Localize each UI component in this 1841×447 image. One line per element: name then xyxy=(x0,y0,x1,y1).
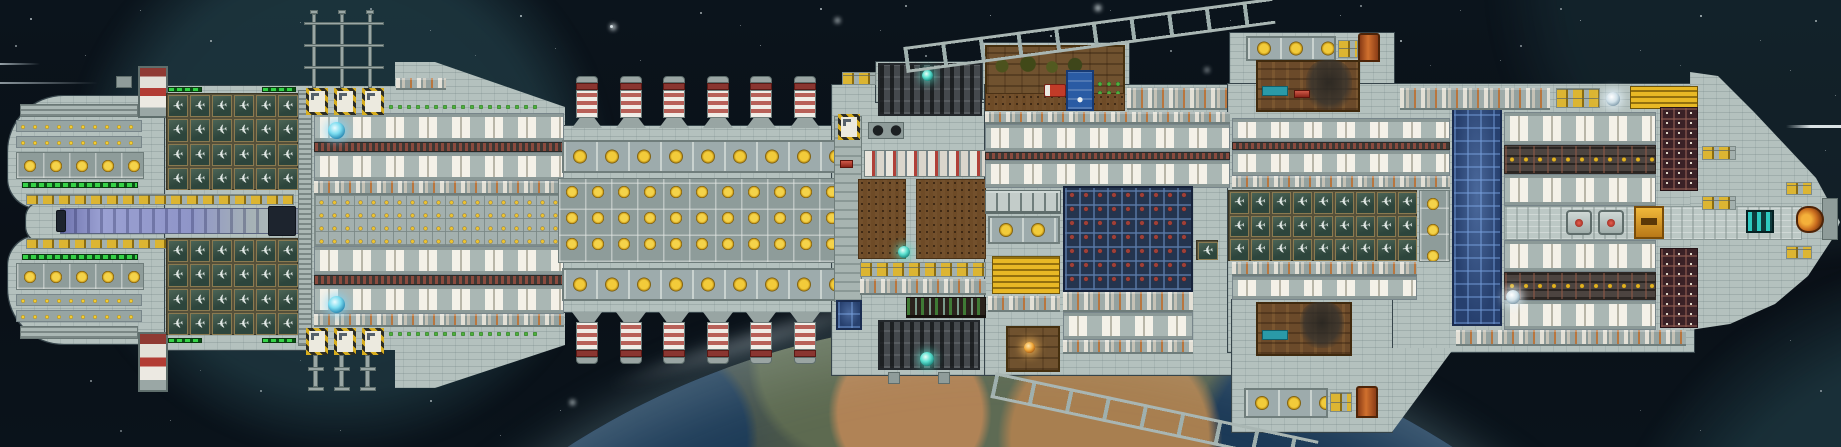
hall-crate-grid xyxy=(314,195,564,246)
hall-orb-top xyxy=(328,122,345,139)
drone-cell: ✈ xyxy=(256,313,276,335)
drone-jet-icon: ✈ xyxy=(1377,216,1396,238)
drone-jet-icon: ✈ xyxy=(190,240,210,262)
dock-leg-brace xyxy=(360,367,376,371)
cargo-drum-grid xyxy=(558,178,838,263)
pod-deck-machines-bottom xyxy=(562,268,836,301)
fuel-pod-base xyxy=(572,312,602,322)
keg-column-top xyxy=(1660,107,1698,191)
drone-jet-icon: ✈ xyxy=(212,144,232,166)
dock-leg-post xyxy=(365,355,370,387)
drone-jet-icon: ✈ xyxy=(1377,192,1396,214)
drone-bay-aft: ✈✈✈✈✈✈✈✈✈✈✈✈✈✈✈✈✈✈✈✈✈✈✈✈✈✈✈ xyxy=(1228,190,1417,261)
drone-cell: ✈ xyxy=(212,144,232,166)
drone-jet-icon: ✈ xyxy=(1314,216,1333,238)
bridge-drums-bottom xyxy=(1244,388,1328,418)
hydro-farm-mid-right xyxy=(916,179,986,259)
drone-cell: ✈ xyxy=(1398,216,1417,238)
drone-cell: ✈ xyxy=(190,264,210,286)
bow-ammo-row-3 xyxy=(16,294,142,306)
drone-jet-icon: ✈ xyxy=(190,168,210,190)
drone-cell: ✈ xyxy=(278,168,298,190)
fuel-pod-band xyxy=(750,83,772,90)
console-top xyxy=(1262,86,1288,96)
fuel-pod-body xyxy=(620,90,642,118)
machine-pod-2 xyxy=(1598,210,1624,235)
drone-jet-icon: ✈ xyxy=(1251,192,1270,214)
fuel-pod-cap xyxy=(663,76,685,83)
drone-jet-icon: ✈ xyxy=(1272,239,1291,261)
fuel-pod-cap xyxy=(576,357,598,364)
fuel-pod-cap xyxy=(663,357,685,364)
panel-red-top xyxy=(1294,90,1310,98)
galley-shelf-2 xyxy=(860,279,986,295)
dock-leg-brace xyxy=(308,367,324,371)
mast-post xyxy=(340,14,344,88)
fuel-pod-base xyxy=(659,118,689,128)
aft-low-shelf xyxy=(1456,330,1686,346)
drone-jet-icon: ✈ xyxy=(1230,239,1249,261)
drone-cell: ✈ xyxy=(278,313,298,335)
drone-jet-icon: ✈ xyxy=(1356,239,1375,261)
drone-jet-icon: ✈ xyxy=(278,95,298,117)
aft-cols-1 xyxy=(1232,118,1450,142)
drone-jet-icon: ✈ xyxy=(212,264,232,286)
robot-arm-icon xyxy=(339,333,342,340)
crew-lockers xyxy=(864,150,986,177)
drone-jet-icon: ✈ xyxy=(234,313,254,335)
robot-arm-icon xyxy=(843,119,846,126)
hall-cols-4 xyxy=(314,285,564,314)
spine-crates-top xyxy=(26,194,294,205)
dock-leg-post xyxy=(313,355,318,387)
stern-cap xyxy=(1822,198,1838,240)
drone-cell: ✈ xyxy=(168,264,188,286)
gold-machines xyxy=(988,216,1060,244)
mast-cap xyxy=(310,10,318,14)
fuel-pod-cap xyxy=(750,357,772,364)
berry-bushes xyxy=(1096,80,1124,94)
drone-cell: ✈ xyxy=(278,95,298,117)
drone-cell: ✈ xyxy=(234,264,254,286)
fuel-pod-body xyxy=(576,90,598,118)
drone-rack-lights-tl xyxy=(168,87,202,92)
drone-jet-icon: ✈ xyxy=(1314,192,1333,214)
drone-jet-icon: ✈ xyxy=(256,313,276,335)
drone-jet-icon: ✈ xyxy=(1356,192,1375,214)
fuel-pod-base xyxy=(616,118,646,128)
drone-cell: ✈ xyxy=(1198,242,1218,260)
drone-cell: ✈ xyxy=(256,168,276,190)
drone-jet-icon: ✈ xyxy=(190,264,210,286)
drone-jet-icon: ✈ xyxy=(1230,216,1249,238)
bow-vent-bottom xyxy=(20,326,138,339)
engine-lamp-top xyxy=(922,70,933,81)
pod-deck-machines-top xyxy=(562,140,836,173)
drone-cell: ✈ xyxy=(212,289,232,311)
fuel-pod-cap xyxy=(707,357,729,364)
hall-cols-3 xyxy=(314,246,564,275)
drone-cell: ✈ xyxy=(234,168,254,190)
drone-cell: ✈ xyxy=(234,95,254,117)
aftr-cols-1 xyxy=(1504,112,1656,145)
drone-jet-icon: ✈ xyxy=(168,119,188,141)
fuel-pod-base xyxy=(659,312,689,322)
drone-jet-icon: ✈ xyxy=(1230,192,1249,214)
drone-rack-lights-bl xyxy=(168,338,202,343)
drone-cell: ✈ xyxy=(190,119,210,141)
drone-jet-icon: ✈ xyxy=(256,119,276,141)
drone-jet-icon: ✈ xyxy=(190,313,210,335)
hall-orb-bottom xyxy=(328,296,345,313)
bow-drum-row-top xyxy=(16,152,144,179)
dock-leg-post xyxy=(339,355,344,387)
drone-jet-icon: ✈ xyxy=(190,95,210,117)
drone-cell: ✈ xyxy=(278,240,298,262)
dock-leg-foot xyxy=(334,387,350,391)
drone-jet-icon: ✈ xyxy=(278,119,298,141)
dock-leg-foot xyxy=(360,387,376,391)
aft-crates-1 xyxy=(1702,146,1736,160)
drone-jet-icon: ✈ xyxy=(1398,216,1417,238)
spine-warn-lamp xyxy=(840,160,853,168)
drone-cell: ✈ xyxy=(1314,216,1333,238)
fuel-pod-base xyxy=(790,312,820,322)
fuel-pod-band xyxy=(576,83,598,90)
drone-jet-icon: ✈ xyxy=(168,144,188,166)
drone-cell: ✈ xyxy=(256,289,276,311)
drone-cell: ✈ xyxy=(168,289,188,311)
robot-arm-icon xyxy=(311,333,314,340)
fuel-pod-body xyxy=(620,322,642,350)
star-cols-3 xyxy=(1063,312,1193,340)
engine-lamp-bottom xyxy=(920,352,934,366)
drone-jet-icon: ✈ xyxy=(278,168,298,190)
drone-cell: ✈ xyxy=(234,240,254,262)
drone-cell: ✈ xyxy=(1356,192,1375,214)
aft-cols-2 xyxy=(1232,150,1450,176)
robot-arm-icon xyxy=(367,93,370,100)
fuel-pod-body xyxy=(576,322,598,350)
deck-shelf-top xyxy=(1127,88,1227,110)
drone-cell: ✈ xyxy=(256,95,276,117)
hall-plants-top xyxy=(378,103,542,113)
drone-jet-icon: ✈ xyxy=(212,289,232,311)
drone-jet-icon: ✈ xyxy=(234,144,254,166)
fuel-pod-cap xyxy=(707,76,729,83)
keg-column-bottom xyxy=(1660,248,1698,328)
aftr-cols-2 xyxy=(1504,174,1656,206)
hull-stub-2 xyxy=(938,372,950,384)
game-viewport[interactable]: ✈✈✈✈✈✈✈✈✈✈✈✈✈✈✈✈✈✈✈✈✈✈✈✈✈✈✈✈✈✈✈✈✈✈✈✈✈✈✈✈… xyxy=(0,0,1841,447)
drone-jet-icon: ✈ xyxy=(1356,216,1375,238)
machine-pod-1 xyxy=(1566,210,1592,235)
fuel-pod-band xyxy=(620,350,642,357)
drone-jet-icon: ✈ xyxy=(212,240,232,262)
farm-sprinkler xyxy=(898,246,910,258)
drone-jet-icon: ✈ xyxy=(234,240,254,262)
drone-cell: ✈ xyxy=(256,144,276,166)
drone-cell: ✈ xyxy=(1293,239,1312,261)
drone-cell: ✈ xyxy=(168,95,188,117)
washroom xyxy=(1066,70,1094,111)
workbench-row-bottom xyxy=(306,328,384,355)
drone-jet-icon: ✈ xyxy=(278,240,298,262)
drone-cell: ✈ xyxy=(1251,192,1270,214)
fuel-pod-base xyxy=(616,312,646,322)
bow-green-top xyxy=(22,182,138,188)
drone-cell: ✈ xyxy=(1356,239,1375,261)
drone-jet-icon: ✈ xyxy=(190,119,210,141)
bow-ammo-row-1 xyxy=(16,120,142,132)
dock-leg-brace xyxy=(334,367,350,371)
drone-jet-icon: ✈ xyxy=(190,144,210,166)
drone-jet-icon: ✈ xyxy=(212,313,232,335)
drone-jet-icon: ✈ xyxy=(1335,216,1354,238)
fuel-pod-body xyxy=(794,322,816,350)
hold-room xyxy=(268,206,296,236)
drone-jet-icon: ✈ xyxy=(278,144,298,166)
drone-cell: ✈ xyxy=(1398,192,1417,214)
roof-crates-1 xyxy=(1556,88,1600,108)
workshop-masts xyxy=(304,10,384,88)
aft-roof-shelf xyxy=(1400,88,1550,110)
fuel-pods-top xyxy=(576,76,816,128)
fuel-pod-base xyxy=(746,312,776,322)
furnace-smoke-top xyxy=(1306,60,1352,110)
drone-cell: ✈ xyxy=(168,119,188,141)
drone-cell: ✈ xyxy=(1314,239,1333,261)
lift-tower-top xyxy=(138,66,168,118)
fuel-pod-band xyxy=(620,83,642,90)
fuel-pod-body xyxy=(663,90,685,118)
fuel-pod-base xyxy=(703,312,733,322)
drone-cell: ✈ xyxy=(212,119,232,141)
drone-jet-icon: ✈ xyxy=(256,168,276,190)
drone-cell: ✈ xyxy=(212,240,232,262)
drone-cell: ✈ xyxy=(1335,239,1354,261)
drone-cell: ✈ xyxy=(1293,216,1312,238)
aft-crates-4 xyxy=(1786,246,1812,259)
hall-plants-bottom xyxy=(378,330,542,340)
drone-cell: ✈ xyxy=(234,289,254,311)
roof-lamp xyxy=(1606,92,1620,106)
mast-crossbar xyxy=(304,66,384,69)
hull-stub-1 xyxy=(888,372,900,384)
fuel-pod-base xyxy=(790,118,820,128)
roof-crates-2 xyxy=(1630,86,1698,109)
hall-shelf-low xyxy=(314,314,564,327)
fuel-pod-band xyxy=(707,83,729,90)
drone-jet-icon: ✈ xyxy=(256,264,276,286)
assembler xyxy=(1634,206,1664,239)
drone-cell: ✈ xyxy=(1356,216,1375,238)
bow-drum-row-bottom xyxy=(16,263,144,290)
drone-cell: ✈ xyxy=(190,240,210,262)
fuel-pod-band xyxy=(750,350,772,357)
fuel-pod-cap xyxy=(794,76,816,83)
aftr-cols-4 xyxy=(1504,300,1656,330)
drone-cell: ✈ xyxy=(256,240,276,262)
drone-jet-icon: ✈ xyxy=(278,264,298,286)
drone-cell: ✈ xyxy=(1314,192,1333,214)
spine-bench xyxy=(838,114,862,140)
drone-jet-icon: ✈ xyxy=(1377,239,1396,261)
mast-cap xyxy=(338,10,346,14)
bow-ammo-row-2 xyxy=(16,136,142,148)
drone-cell: ✈ xyxy=(234,119,254,141)
drone-cell: ✈ xyxy=(278,289,298,311)
hall-roof-shelf xyxy=(396,78,446,90)
galley-low-shelf xyxy=(988,296,1060,312)
cold-lockers xyxy=(1063,186,1193,292)
drone-cell: ✈ xyxy=(1230,192,1249,214)
furnace-smoke-bottom xyxy=(1300,302,1344,348)
drone-jet-icon: ✈ xyxy=(234,264,254,286)
lift-tower-bottom xyxy=(138,332,168,392)
bow-vent-top xyxy=(20,104,138,117)
workbench-row-top xyxy=(306,88,384,115)
fuel-pod-cap xyxy=(620,76,642,83)
fuel-pod-body xyxy=(663,322,685,350)
drone-jet-icon: ✈ xyxy=(168,95,188,117)
drone-cell: ✈ xyxy=(1251,216,1270,238)
hall-cols-2 xyxy=(314,152,564,181)
aft-shelf-1 xyxy=(1232,176,1450,189)
drone-jet-icon: ✈ xyxy=(168,289,188,311)
crew-bed xyxy=(1044,84,1066,97)
drone-jet-icon: ✈ xyxy=(168,313,188,335)
fuel-pod-cap xyxy=(794,357,816,364)
robot-arm-icon xyxy=(367,333,370,340)
drone-jet-icon: ✈ xyxy=(212,168,232,190)
drone-cell: ✈ xyxy=(1272,216,1291,238)
fuel-pods-bottom xyxy=(576,312,816,364)
hall-shelf-mid xyxy=(314,181,564,195)
aftr-goldhatch-1 xyxy=(1504,145,1656,174)
aft-hatch-1 xyxy=(1232,142,1450,150)
drone-cell: ✈ xyxy=(1230,239,1249,261)
wine-rack xyxy=(906,297,986,318)
star-shelf-band xyxy=(985,112,1230,124)
drone-jet-icon: ✈ xyxy=(234,168,254,190)
drone-cell: ✈ xyxy=(190,313,210,335)
ingot-store xyxy=(992,256,1060,294)
monitor-bank xyxy=(1746,210,1774,233)
mast-post xyxy=(312,14,316,88)
star-cols-1 xyxy=(985,124,1230,152)
drone-rack-lights-br xyxy=(262,338,296,343)
hall-cols-1 xyxy=(314,113,564,142)
drone-jet-icon: ✈ xyxy=(1335,239,1354,261)
drone-jet-icon: ✈ xyxy=(1293,192,1312,214)
drone-jet-icon: ✈ xyxy=(212,95,232,117)
drone-jet-icon: ✈ xyxy=(234,119,254,141)
galley-shelf-1 xyxy=(860,262,986,277)
bow-roof-vent xyxy=(116,76,132,88)
bow-green-bottom xyxy=(22,254,138,260)
drone-jet-icon: ✈ xyxy=(1198,242,1218,260)
drum-column xyxy=(1419,190,1450,262)
drone-cell: ✈ xyxy=(256,119,276,141)
drone-cell: ✈ xyxy=(256,264,276,286)
drone-cell: ✈ xyxy=(278,119,298,141)
drone-cell: ✈ xyxy=(1335,192,1354,214)
drone-cell: ✈ xyxy=(1272,239,1291,261)
drone-cell: ✈ xyxy=(168,144,188,166)
bridge-crates-bottom xyxy=(1330,392,1352,412)
drone-cell: ✈ xyxy=(1335,216,1354,238)
drone-cell: ✈ xyxy=(1377,192,1396,214)
drone-cell: ✈ xyxy=(212,95,232,117)
fuel-pod-body xyxy=(707,90,729,118)
drone-cell: ✈ xyxy=(1230,216,1249,238)
drone-cell: ✈ xyxy=(1377,216,1396,238)
drone-jet-icon: ✈ xyxy=(1293,239,1312,261)
drone-jet-icon: ✈ xyxy=(168,168,188,190)
aft-crates-2 xyxy=(1702,196,1736,210)
star-cols-2 xyxy=(985,160,1230,188)
drone-cell: ✈ xyxy=(234,144,254,166)
fore-shaft xyxy=(298,90,312,346)
drone-jet-icon: ✈ xyxy=(256,240,276,262)
fuel-pod-body xyxy=(707,322,729,350)
aftr-goldhatch-2 xyxy=(1504,272,1656,300)
bow-ammo-row-4 xyxy=(16,310,142,322)
smelter-funnel-bottom xyxy=(1356,386,1378,418)
drone-bay-top: ✈✈✈✈✈✈✈✈✈✈✈✈✈✈✈✈✈✈✈✈✈✈✈✈ xyxy=(166,93,298,190)
drone-cell: ✈ xyxy=(1272,192,1291,214)
drone-jet-icon: ✈ xyxy=(1251,216,1270,238)
hull-aft-step-wedge xyxy=(1392,348,1454,432)
hall-hatch-2 xyxy=(314,275,564,285)
drone-cell: ✈ xyxy=(168,240,188,262)
bridge-drums xyxy=(1246,36,1336,61)
drone-jet-icon: ✈ xyxy=(1272,192,1291,214)
dock-legs xyxy=(304,355,384,395)
drone-cell: ✈ xyxy=(190,168,210,190)
drone-jet-icon: ✈ xyxy=(234,289,254,311)
drone-cell: ✈ xyxy=(168,168,188,190)
drone-bay-bottom: ✈✈✈✈✈✈✈✈✈✈✈✈✈✈✈✈✈✈✈✈✈✈✈✈ xyxy=(166,238,298,335)
aft-crates-3 xyxy=(1786,182,1812,195)
robot-arm-icon xyxy=(339,93,342,100)
bridge-crates xyxy=(1338,40,1358,58)
ore-hopper xyxy=(836,300,862,330)
star-hatch xyxy=(985,152,1230,160)
drone-jet-icon: ✈ xyxy=(1335,192,1354,214)
drone-jet-icon: ✈ xyxy=(1398,239,1417,261)
star-shelf-low xyxy=(1063,340,1193,354)
firepit xyxy=(1024,342,1035,353)
drone-jet-icon: ✈ xyxy=(1398,192,1417,214)
mast-crossbar xyxy=(304,44,384,47)
stern-thruster xyxy=(1796,206,1824,233)
drone-cell: ✈ xyxy=(212,264,232,286)
drone-cell: ✈ xyxy=(168,313,188,335)
fuel-pod-base xyxy=(703,118,733,128)
drone-cell: ✈ xyxy=(190,144,210,166)
drone-jet-icon: ✈ xyxy=(278,313,298,335)
drone-jet-icon: ✈ xyxy=(168,264,188,286)
drone-jet-icon: ✈ xyxy=(278,289,298,311)
spare-drone: ✈ xyxy=(1196,240,1218,260)
fuel-pod-band xyxy=(794,350,816,357)
ship-layer: ✈✈✈✈✈✈✈✈✈✈✈✈✈✈✈✈✈✈✈✈✈✈✈✈✈✈✈✈✈✈✈✈✈✈✈✈✈✈✈✈… xyxy=(0,0,1841,447)
aft-cols-low xyxy=(1232,276,1417,300)
fuel-pod-body xyxy=(750,322,772,350)
drone-cell: ✈ xyxy=(1251,239,1270,261)
